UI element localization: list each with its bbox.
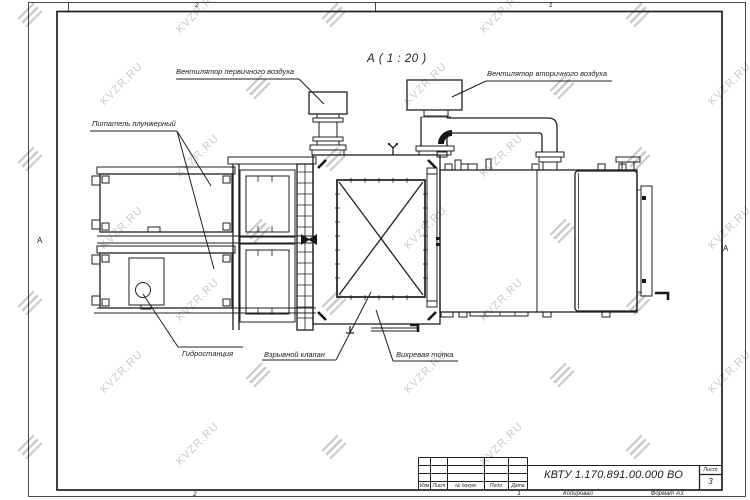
fold-mark-right: А (723, 244, 728, 253)
fold-mark-left: А (37, 236, 42, 245)
titleblock-col-izm: Изм (419, 483, 431, 489)
callout-secondary-fan: Вентилятор вторичного воздуха (487, 69, 607, 78)
titleblock-col-doc: № докум. (448, 483, 485, 489)
callout-plunger-feeder: Питатель плунжерный (92, 119, 176, 128)
callout-primary-fan: Вентилятор первичного воздуха (176, 67, 294, 76)
titleblock-col-data: Дата (509, 483, 528, 489)
zone-number-top-left: 2 (195, 2, 199, 9)
text-layer: А ( 1 : 20 ) Вентилятор первичного возду… (0, 0, 750, 500)
titleblock-sheet-number: 3 (700, 477, 722, 486)
callout-hydrostation: Гидростанция (182, 349, 233, 358)
titleblock-sheet-label: Лист (700, 467, 722, 473)
drawing-sheet: KVZR.RUKVZR.RUKVZR.RUKVZR.RUKVZR.RUKVZR.… (0, 0, 750, 500)
zone-number-bottom: 2 (193, 491, 197, 498)
titleblock-col-list: Лист (431, 483, 448, 489)
titleblock-doc-number: КВТУ 1.170.891.00.000 ВО (528, 469, 700, 481)
callout-explosion-valve: Взрывной клапан (264, 350, 325, 359)
footer-number: 1 (509, 491, 529, 497)
callout-vortex-furnace: Вихревая топка (396, 350, 453, 359)
footer-format: Формат А3 (637, 491, 697, 497)
zone-number-top-right: 1 (549, 2, 553, 9)
footer-copied: Копировал (548, 491, 608, 497)
titleblock-col-podp: Подп. (485, 483, 509, 489)
view-title: А ( 1 : 20 ) (367, 53, 427, 65)
